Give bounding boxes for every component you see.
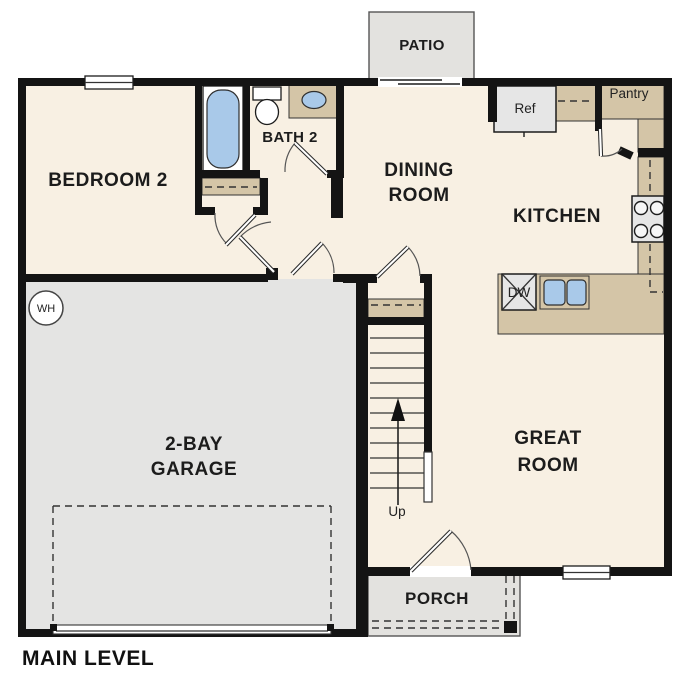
garage-door-post-left [50, 624, 57, 631]
water-heater-label: WH [37, 303, 55, 315]
wall-stairtop-left [343, 274, 377, 283]
porch-post [504, 621, 517, 633]
kitchen-sink-basin-right [567, 280, 586, 305]
wall-pantry-south [638, 148, 672, 157]
patio-label: PATIO [399, 37, 445, 54]
stair-closet-shelf [368, 299, 424, 319]
bath-sink [302, 92, 326, 109]
wall-pantry-angled-jamb [619, 150, 632, 156]
stair-railing [424, 452, 432, 502]
front-door-opening [410, 566, 471, 577]
wall-closet-south-left [195, 207, 215, 215]
burner [651, 225, 664, 238]
garage-door-post-right [327, 624, 334, 631]
wall-pantry-west-stub [595, 84, 602, 131]
kitchen-label: KITCHEN [513, 206, 601, 227]
floor-plan-drawing: BEDROOM 2 BATH 2 DINING ROOM KITCHEN GRE… [0, 0, 687, 687]
wall-bath-dining [336, 82, 344, 178]
garage-door-panel [53, 625, 331, 634]
stairs-up-label: Up [388, 504, 405, 519]
wall-hall-dining-divider [331, 172, 343, 218]
wall-garage-east [356, 277, 368, 637]
refrigerator-label: Ref [514, 101, 535, 116]
patio-slider-opening [378, 77, 462, 87]
wall-closet-south-right [253, 207, 268, 215]
plan-title: MAIN LEVEL [22, 647, 154, 670]
garage-floor [22, 279, 364, 633]
toilet-tank [253, 87, 281, 100]
dishwasher-label: DW [508, 285, 531, 300]
wall-bath-south [195, 170, 260, 178]
burner [651, 202, 664, 215]
bedroom2-label: BEDROOM 2 [48, 170, 168, 191]
garage-label-line1: 2-BAY [165, 434, 223, 455]
wall-tub-east [243, 84, 250, 174]
bathtub [207, 90, 239, 168]
burner [635, 225, 648, 238]
pantry-shelf-side [638, 119, 664, 152]
dining-label-line1: DINING [384, 160, 454, 181]
toilet-bowl [256, 100, 279, 125]
wall-stair-top-edge [368, 317, 424, 325]
kitchen-sink-basin-left [544, 280, 565, 305]
pantry-door-leaf [600, 129, 601, 156]
greatroom-label-line2: ROOM [517, 455, 578, 476]
garage-label-line2: GARAGE [151, 459, 237, 480]
greatroom-label-line1: GREAT [514, 428, 582, 449]
floor-plan-page: BEDROOM 2 BATH 2 DINING ROOM KITCHEN GRE… [0, 0, 687, 687]
wall-stair-east [424, 277, 432, 453]
wall-bottom-house [356, 567, 672, 576]
wall-bath-door-stub [327, 170, 343, 178]
wall-left [18, 78, 26, 637]
pantry-label: Pantry [609, 86, 648, 101]
porch-label: PORCH [405, 589, 469, 608]
burner [635, 202, 648, 215]
dining-label-line2: ROOM [388, 185, 449, 206]
wall-bedroom-garage [18, 274, 268, 282]
bath2-label: BATH 2 [262, 129, 317, 146]
wall-bedroom-bath [195, 84, 202, 215]
counter-beside-ref [556, 84, 597, 121]
wall-ref-stub [488, 84, 497, 122]
